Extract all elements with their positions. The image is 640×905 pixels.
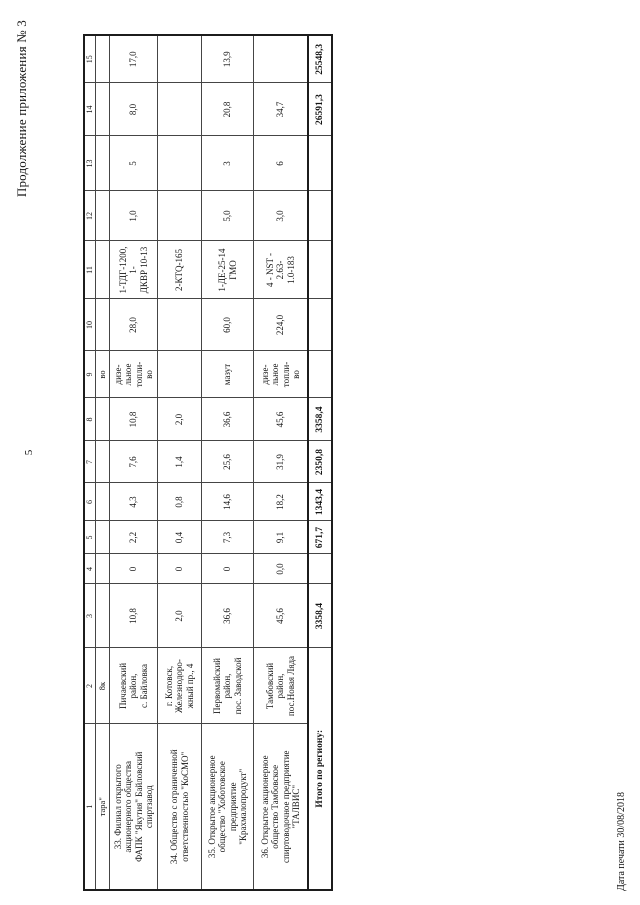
table-cell: 9,1 (254, 521, 309, 554)
col-number: 1 (84, 724, 96, 890)
total-label-cell: Итого по региону: (308, 648, 332, 890)
table-cell: 36,6 (202, 584, 254, 648)
table-cell (96, 35, 110, 83)
table-cell: г. Котовск, Железнодоро- жный пр., 4 (158, 648, 202, 724)
table-cell: 36,6 (202, 398, 254, 441)
table-cell (96, 83, 110, 136)
total-cell (308, 136, 332, 191)
table-cell (96, 584, 110, 648)
col-number: 8 (84, 398, 96, 441)
table-cell: 1,0 (110, 191, 158, 241)
total-cell (308, 554, 332, 584)
table-cell: 45,6 (254, 398, 309, 441)
table-cell: 0 (110, 554, 158, 584)
table-cell: 2,0 (158, 584, 202, 648)
table-row-34: 34. Общество с ограниченной ответственно… (158, 35, 202, 890)
table-cell: 1-ДЕ-25-14 ГМО (202, 241, 254, 299)
total-cell (308, 299, 332, 351)
table-cell: 0,0 (254, 554, 309, 584)
table-cell (158, 83, 202, 136)
page-number: 5 (23, 0, 35, 905)
col-number: 7 (84, 441, 96, 483)
col-number: 11 (84, 241, 96, 299)
column-numbers-row: 1 2 3 4 5 6 7 8 9 10 11 12 13 14 15 (84, 35, 96, 890)
table-cell (96, 191, 110, 241)
table-cell: 7,6 (110, 441, 158, 483)
table-cell: 25,6 (202, 441, 254, 483)
table-cell: 0,4 (158, 521, 202, 554)
table-cell (158, 136, 202, 191)
table-cell: 8,0 (110, 83, 158, 136)
table-cell: 0 (158, 554, 202, 584)
table-cell (158, 351, 202, 398)
total-cell: 2350,8 (308, 441, 332, 483)
table-cell: 224,0 (254, 299, 309, 351)
col-number: 13 (84, 136, 96, 191)
table-cell: 20,8 (202, 83, 254, 136)
table-cell (96, 441, 110, 483)
table-row-total: Итого по региону: 3358,4 671,7 1343,4 23… (308, 35, 332, 890)
fuel-boilers-table: 1 2 3 4 5 6 7 8 9 10 11 12 13 14 15 тара… (83, 34, 333, 891)
org-name-cell: 33. Филиал открытого акционерного общест… (110, 724, 158, 890)
table-cell: 28,0 (110, 299, 158, 351)
table-cell: во (96, 351, 110, 398)
table-cell: 34,7 (254, 83, 309, 136)
total-cell: 3358,4 (308, 584, 332, 648)
total-cell: 26591,3 (308, 83, 332, 136)
col-number: 5 (84, 521, 96, 554)
col-number: 14 (84, 83, 96, 136)
col-number: 6 (84, 483, 96, 521)
col-number: 12 (84, 191, 96, 241)
total-cell (308, 351, 332, 398)
table-cell: 3,0 (254, 191, 309, 241)
table-cell: 5 (110, 136, 158, 191)
table-cell: дизе- льное топли- во (254, 351, 309, 398)
table-cell: 2,0 (158, 398, 202, 441)
table-row-carryover: тара" 8к во (96, 35, 110, 890)
scanned-page: Продолжение приложения № 3 5 1 2 3 4 5 6… (0, 0, 640, 905)
col-number: 4 (84, 554, 96, 584)
total-cell: 3358,4 (308, 398, 332, 441)
col-number: 9 (84, 351, 96, 398)
table-cell (158, 299, 202, 351)
table-cell: Первомайский район, пос. Заводской (202, 648, 254, 724)
table-cell: 60,0 (202, 299, 254, 351)
col-number: 10 (84, 299, 96, 351)
table-cell: 31,9 (254, 441, 309, 483)
total-cell: 671,7 (308, 521, 332, 554)
table-cell (158, 35, 202, 83)
total-cell: 25548,3 (308, 35, 332, 83)
table-cell: 8к (96, 648, 110, 724)
org-name-cell: 35. Открытое акционерное общество "Хобот… (202, 724, 254, 890)
table-cell: 4 - NST - 2.63- 1.0-183 (254, 241, 309, 299)
table-row-36: 36. Открытое акционерное общество Тамбов… (254, 35, 309, 890)
table-cell (158, 191, 202, 241)
table-cell: 0 (202, 554, 254, 584)
table-cell (96, 554, 110, 584)
col-number: 3 (84, 584, 96, 648)
total-cell: 1343,4 (308, 483, 332, 521)
table-cell (254, 35, 309, 83)
table-row-35: 35. Открытое акционерное общество "Хобот… (202, 35, 254, 890)
table-cell: 45,6 (254, 584, 309, 648)
table-cell: 13,9 (202, 35, 254, 83)
table-cell: 10,8 (110, 584, 158, 648)
table-cell: дизе- льное топли- во (110, 351, 158, 398)
table-cell: 7,3 (202, 521, 254, 554)
table-cell: 3 (202, 136, 254, 191)
total-cell (308, 241, 332, 299)
table-cell: 2-КТQ-165 (158, 241, 202, 299)
print-date: Дата печати 30/08/2018 (616, 792, 627, 891)
table-cell: мазут (202, 351, 254, 398)
org-name-cell: 36. Открытое акционерное общество Тамбов… (254, 724, 309, 890)
table-cell: 2,2 (110, 521, 158, 554)
table-cell (96, 136, 110, 191)
col-number: 15 (84, 35, 96, 83)
table-cell: 4,3 (110, 483, 158, 521)
table-row-33: 33. Филиал открытого акционерного общест… (110, 35, 158, 890)
org-name-cell: 34. Общество с ограниченной ответственно… (158, 724, 202, 890)
table-cell (96, 398, 110, 441)
table-cell: 5,0 (202, 191, 254, 241)
table-cell (96, 521, 110, 554)
table-cell (96, 483, 110, 521)
table-cell: 0,8 (158, 483, 202, 521)
org-name-cell: тара" (96, 724, 110, 890)
total-cell (308, 191, 332, 241)
table-cell: 10,8 (110, 398, 158, 441)
table-cell (96, 299, 110, 351)
table-cell: 17,0 (110, 35, 158, 83)
table-cell: 1-ТДГ-1200, 1- ДКВР 10-13 (110, 241, 158, 299)
table-cell: Пичаевский район, с. Байловка (110, 648, 158, 724)
table-cell: 18,2 (254, 483, 309, 521)
table-cell: 14,6 (202, 483, 254, 521)
table-cell: 1,4 (158, 441, 202, 483)
table-cell: 6 (254, 136, 309, 191)
table-cell: Тамбовский район, пос.Новая Ляда (254, 648, 309, 724)
col-number: 2 (84, 648, 96, 724)
table-cell (96, 241, 110, 299)
